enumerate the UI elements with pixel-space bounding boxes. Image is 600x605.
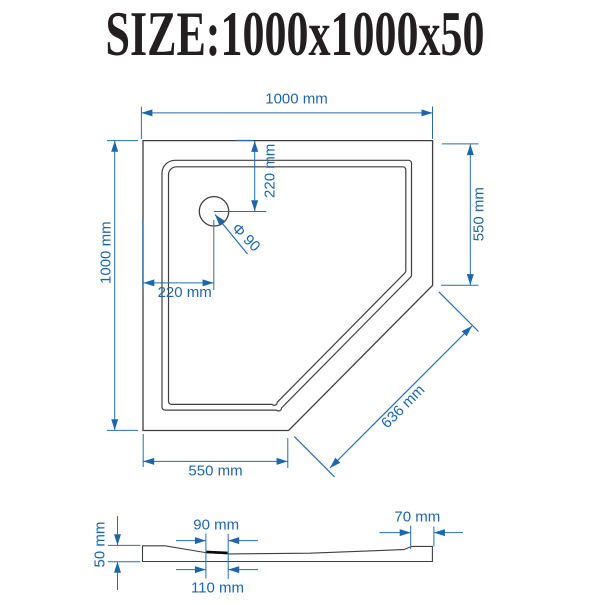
svg-text:90 mm: 90 mm [193, 517, 239, 534]
svg-text:220 mm: 220 mm [262, 144, 279, 198]
svg-text:550 mm: 550 mm [471, 187, 488, 241]
svg-text:1000 mm: 1000 mm [98, 221, 115, 284]
svg-text:220 mm: 220 mm [158, 284, 212, 301]
svg-text:1000 mm: 1000 mm [265, 91, 328, 108]
svg-text:110 mm: 110 mm [191, 580, 244, 597]
svg-text:550 mm: 550 mm [188, 463, 242, 480]
svg-text:70 mm: 70 mm [394, 508, 440, 525]
svg-text:50 mm: 50 mm [92, 522, 109, 568]
svg-text:SIZE:1000x1000x50: SIZE:1000x1000x50 [106, 0, 485, 69]
